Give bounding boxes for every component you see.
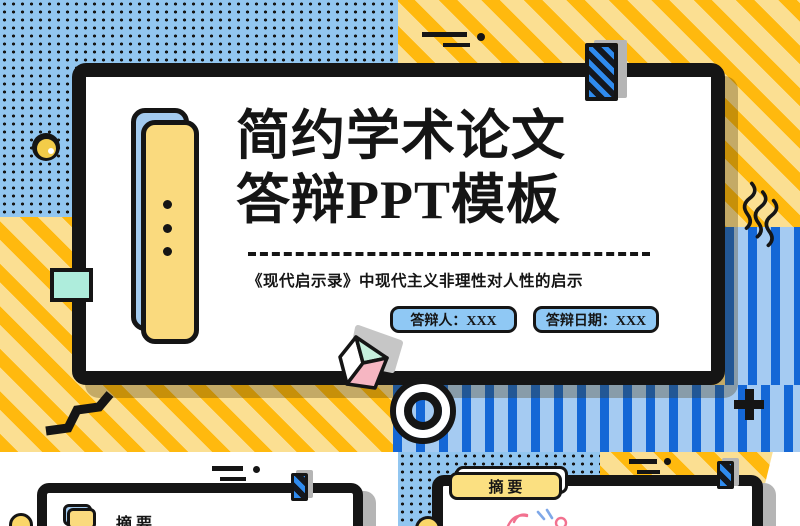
bookmark-dot	[163, 224, 172, 233]
dash-line	[443, 43, 470, 47]
bookmark-dot	[163, 200, 172, 209]
target-ring-inner	[404, 392, 442, 430]
equals-dash-icon	[212, 466, 264, 482]
bookmark-dot	[163, 247, 172, 256]
dash-line	[212, 466, 243, 471]
dot	[253, 466, 260, 473]
yellow-dot-circle-icon	[32, 133, 60, 161]
yellow-circle-icon	[9, 513, 33, 526]
dash-line	[422, 32, 467, 37]
title-line-2: 答辩PPT模板	[236, 168, 566, 232]
striped-tape-icon	[585, 43, 618, 101]
slide2-heading: 摘 要	[116, 510, 152, 526]
dash-line	[629, 459, 657, 464]
title-line-1: 简约学术论文	[236, 104, 566, 168]
note-icon	[67, 508, 96, 526]
wave-lines-icon	[730, 180, 800, 272]
dot	[477, 33, 485, 41]
cube-3d-icon	[328, 325, 413, 395]
defense-date-button[interactable]: 答辩日期：XXX	[533, 306, 659, 333]
striped-tape-icon	[291, 473, 308, 501]
dashed-separator	[248, 252, 650, 256]
slide3-section-label[interactable]: 摘 要	[449, 472, 562, 500]
dash-line	[637, 470, 660, 474]
equals-dash-icon	[422, 32, 488, 48]
striped-tape-icon	[717, 461, 734, 489]
highlight-dot	[48, 148, 54, 154]
equals-dash-icon	[629, 458, 673, 475]
plus-sign-icon	[734, 389, 764, 420]
dash-line	[220, 477, 246, 481]
dot	[664, 458, 671, 465]
next-slides-strip: 摘 要 摘 要	[0, 452, 800, 526]
subtitle: 《现代启示录》中现代主义非理性对人性的启示	[247, 269, 583, 291]
zigzag-line-icon	[40, 386, 120, 438]
ppt-template-cover: 简约学术论文 答辩PPT模板 《现代启示录》中现代主义非理性对人性的启示 答辩人…	[0, 0, 800, 526]
page-title: 简约学术论文 答辩PPT模板	[236, 104, 566, 232]
mint-square-icon	[50, 268, 93, 302]
doodle-decorations-icon	[506, 506, 576, 526]
